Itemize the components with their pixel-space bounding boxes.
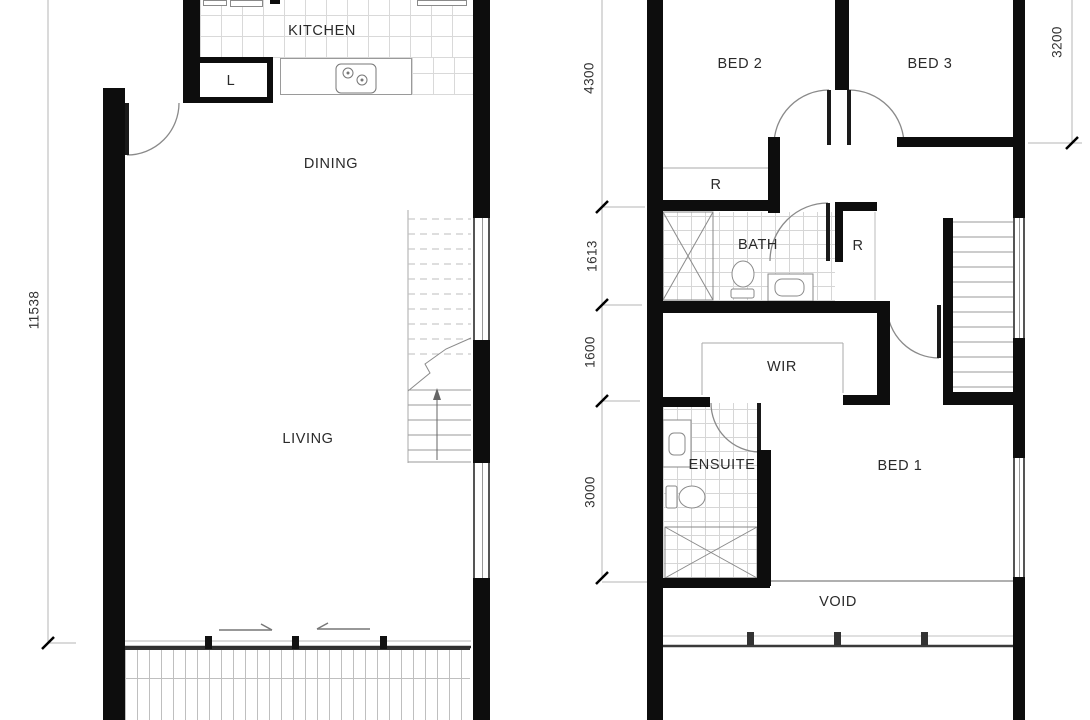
shower-icon [663,212,713,300]
dimension-label-bed-zone: 4300 [582,62,597,94]
room-label-robe-bath: R [852,238,863,254]
basin-icon [768,274,813,301]
room-label-kitchen: KITCHEN [288,23,356,39]
dimension-line-left-total [42,0,76,649]
room-label-ensuite: ENSUITE [688,457,755,473]
wall-segment [647,578,770,588]
room-label-dining: DINING [304,156,358,172]
dimension-label-bed1-zone: 3000 [583,476,598,508]
window [473,218,490,340]
wall-segment [103,88,125,720]
wall-segment [473,0,490,218]
wall-segment [660,301,890,313]
room-label-bed2: BED 2 [718,56,763,72]
wall-segment [757,450,771,586]
plan-linework [0,0,1090,720]
wall-segment [1013,577,1025,720]
wall-segment [943,218,953,392]
dimension-label-wir-zone: 1600 [583,336,598,368]
sliding-door-icon [125,623,471,649]
room-label-bed1: BED 1 [878,458,923,474]
room-label-bath: BATH [738,237,778,253]
floor-plan: KITCHEN L DINING LIVING BED 2 BED 3 R BA… [0,0,1090,720]
wall-segment [1013,0,1025,218]
wall-segment [897,137,1013,147]
wall-segment [843,395,890,405]
wall-segment [473,340,490,463]
toilet-icon [666,486,705,508]
toilet-icon [731,261,754,298]
room-label-wir: WIR [767,359,797,375]
wall-segment [183,57,273,63]
door-swing-icon [774,90,904,145]
stairs-icon [953,222,1013,387]
wall-segment [835,202,843,262]
dimension-label-bed3-depth: 3200 [1050,26,1065,58]
dimension-label-bath-zone: 1613 [585,240,600,272]
wall-segment [835,0,849,90]
wall-segment [183,97,273,103]
window [1013,218,1025,338]
wall-segment [267,57,273,103]
wall-segment [660,397,710,407]
door-swing-icon [887,305,939,358]
dimension-line-right-chain [596,0,647,584]
stairs-icon [408,210,471,463]
wall-segment [943,392,1013,405]
door-swing-icon [711,403,759,452]
window [473,463,490,578]
wall-segment [877,301,890,403]
room-label-living: LIVING [282,431,333,447]
cooktop-icon [336,64,376,93]
wall-segment [473,578,490,720]
dimension-line-bed3 [1028,0,1082,149]
wall-segment [183,0,200,103]
room-label-laundry: L [227,73,236,89]
room-label-robe-bed2: R [710,177,721,193]
dimension-label-total-depth: 11538 [27,291,42,330]
window [1013,458,1025,577]
wall-segment [1013,338,1025,458]
wall-segment [663,200,770,211]
room-label-void: VOID [819,594,857,610]
door-swing-icon [127,103,179,155]
wall-segment [647,0,663,720]
balustrade-icon [663,632,1013,646]
room-label-bed3: BED 3 [908,56,953,72]
shower-icon [665,527,757,578]
basin-icon [663,420,691,467]
